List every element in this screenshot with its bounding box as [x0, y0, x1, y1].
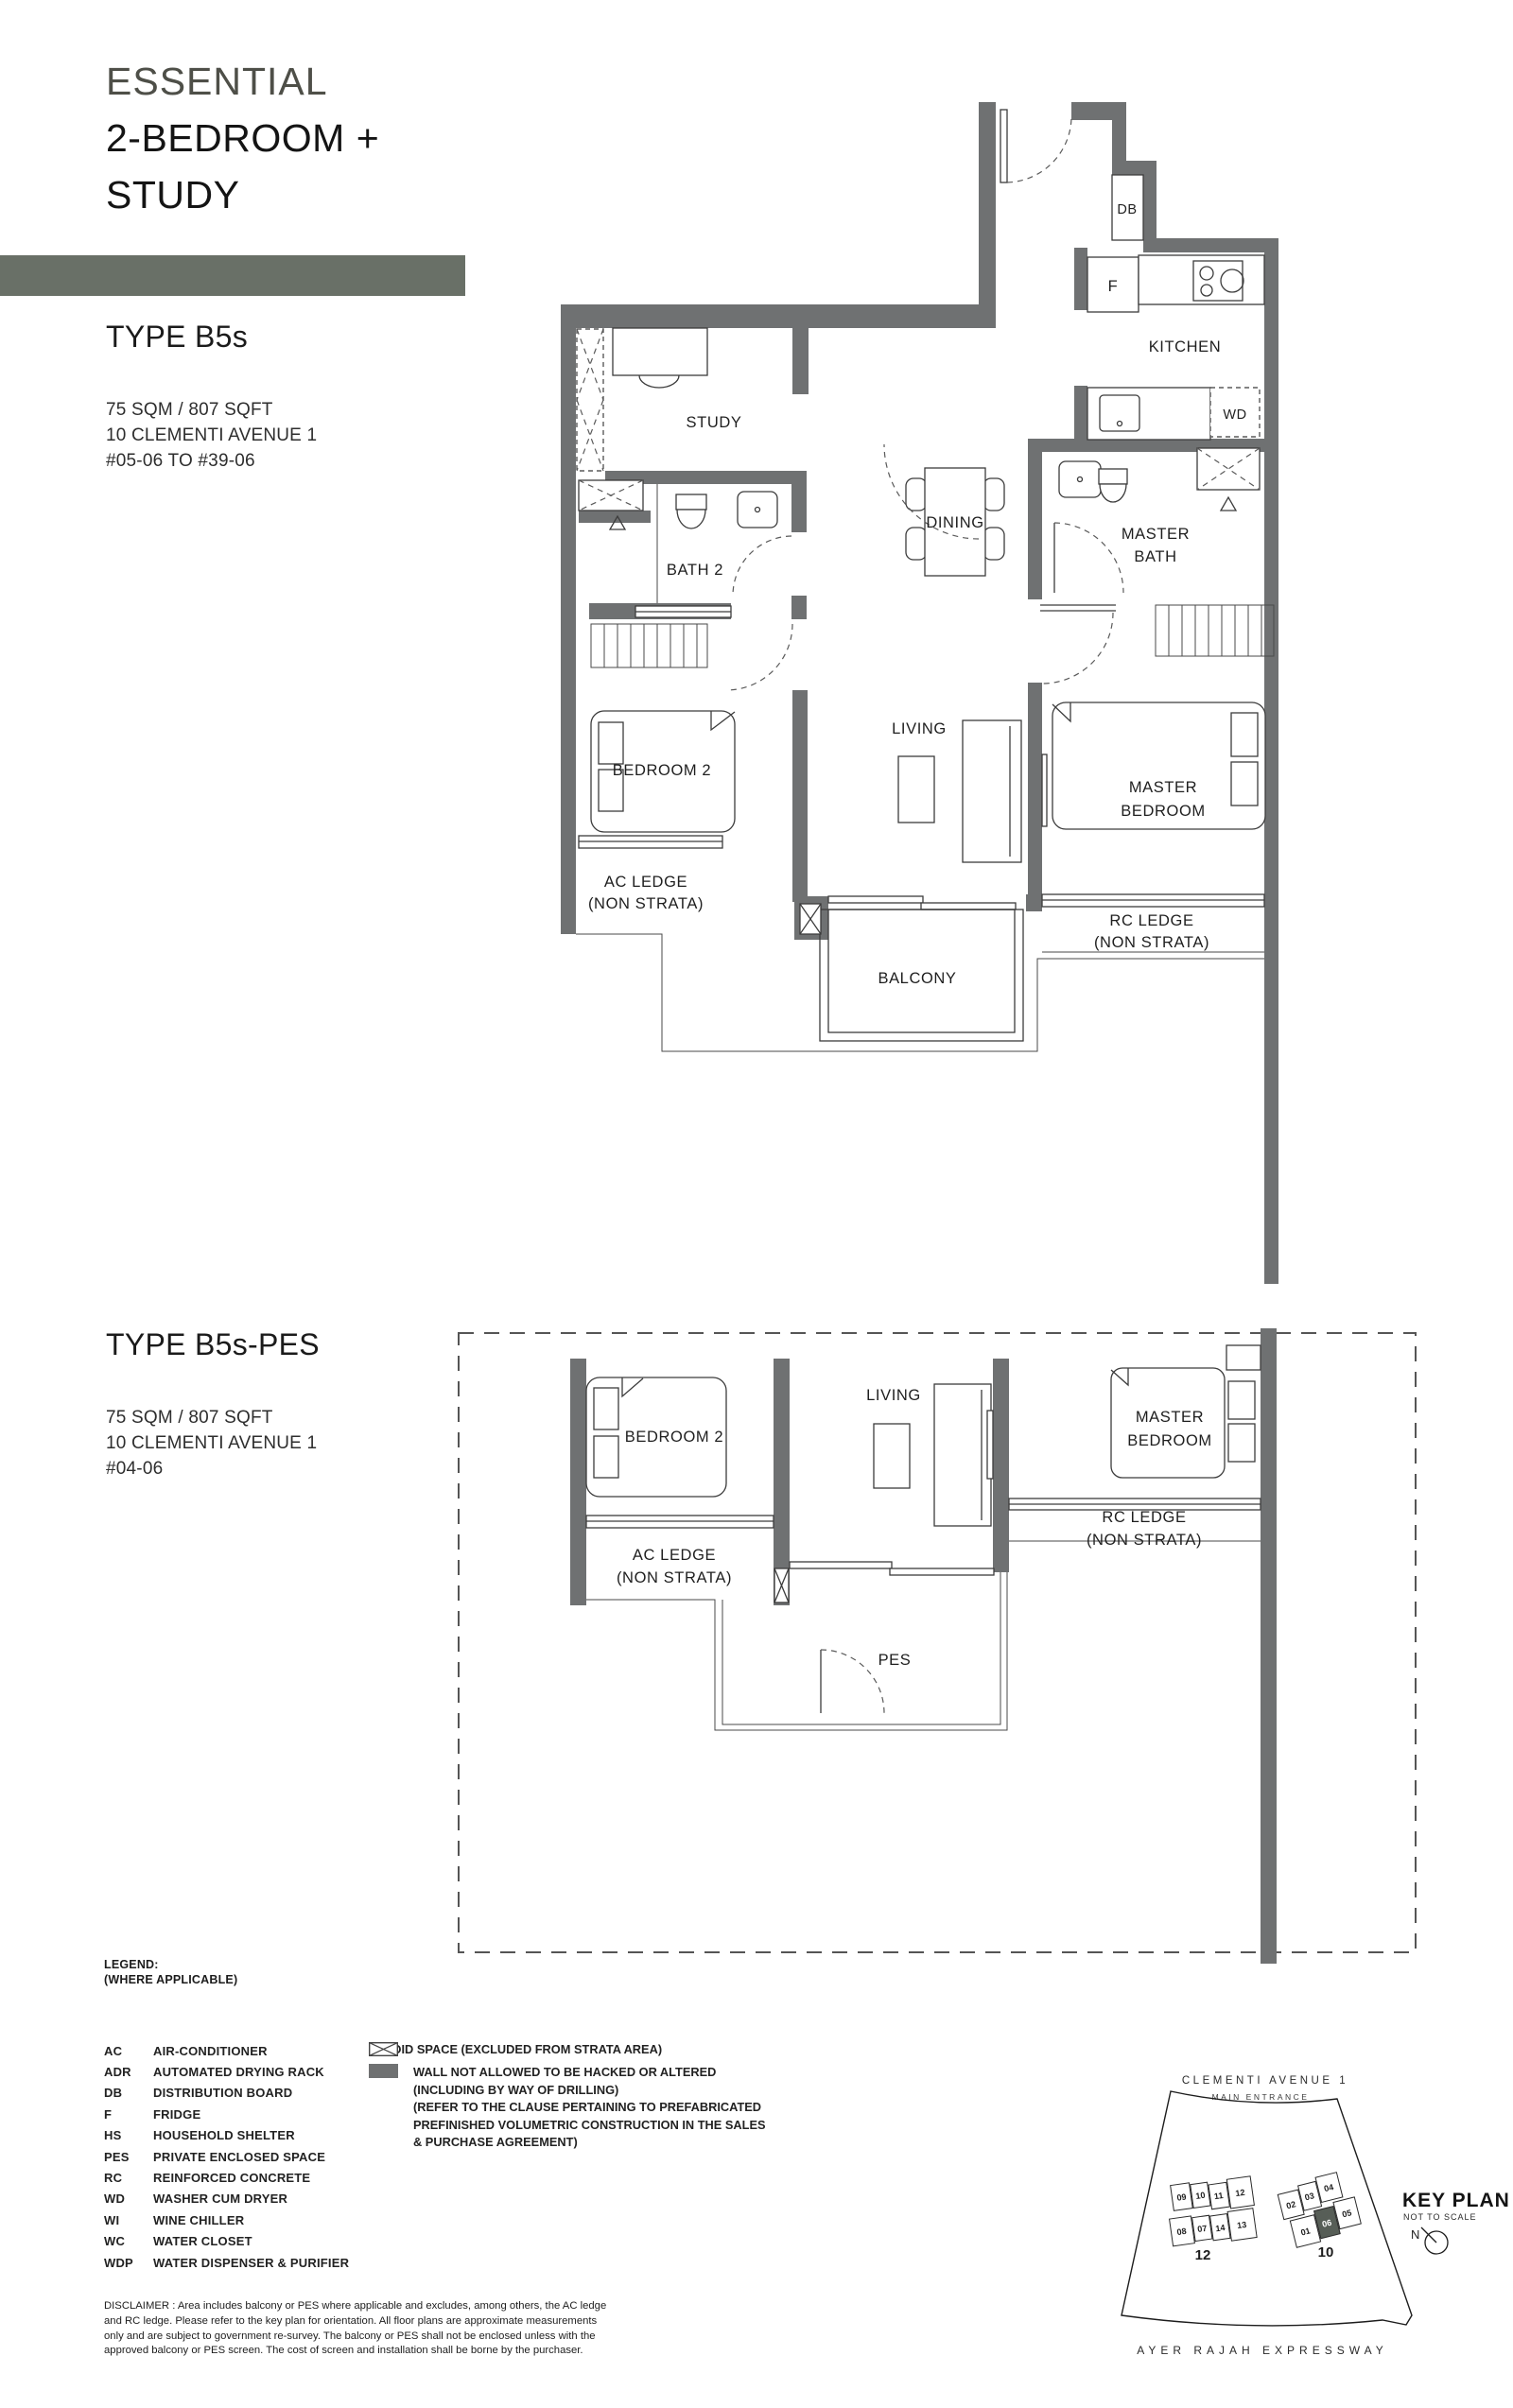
legend-item: WDPWATER DISPENSER & PURIFIER — [104, 2252, 359, 2273]
type-b5s-area: 75 SQM / 807 SQFT — [106, 397, 317, 423]
type-b5s-pes-area: 75 SQM / 807 SQFT — [106, 1405, 317, 1430]
plan2-label-living: LIVING — [866, 1387, 921, 1404]
type-b5s-address: 10 CLEMENTI AVENUE 1 — [106, 423, 317, 448]
plan1-label-master-bed-1: MASTER — [1129, 779, 1197, 796]
legend-item: ADRAUTOMATED DRYING RACK — [104, 2061, 359, 2082]
north-indicator-icon: N — [1411, 2227, 1448, 2254]
plan1-label-bedroom2: BEDROOM 2 — [613, 762, 711, 779]
plan2-label-rc-ledge-1: RC LEDGE — [1102, 1509, 1186, 1526]
legend-list: ACAIR-CONDITIONER ADRAUTOMATED DRYING RA… — [104, 2040, 359, 2273]
block-12-cluster: 09 10 11 12 08 07 14 13 — [1165, 2174, 1259, 2249]
void-space-icon — [369, 2042, 398, 2056]
master-window — [1042, 894, 1264, 907]
plan1-label-wd: WD — [1223, 407, 1246, 423]
floorplan-type-b5s-pes: BEDROOM 2 LIVING MASTER BEDROOM AC LEDGE… — [444, 1319, 1447, 1971]
plan1-label-fridge: F — [1108, 278, 1119, 295]
legend-heading: LEGEND: (WHERE APPLICABLE) — [104, 1957, 237, 1987]
block-10-cluster: 02 03 04 01 06 05 — [1276, 2170, 1363, 2249]
page-title-line2: STUDY — [106, 166, 379, 223]
plan1-label-living: LIVING — [892, 720, 947, 737]
legend-title: LEGEND: — [104, 1957, 237, 1972]
plan1-label-kitchen: KITCHEN — [1149, 338, 1222, 355]
plan1-label-master-bed-2: BEDROOM — [1121, 803, 1205, 820]
keyplan-title: KEY PLAN — [1402, 2190, 1510, 2211]
svg-text:13: 13 — [1237, 2220, 1247, 2230]
keyplan-expressway-label: AYER RAJAH EXPRESSWAY — [1137, 2344, 1387, 2357]
plan2-living-furniture — [874, 1384, 993, 1526]
key-plan: CLEMENTI AVENUE 1 MAIN ENTRANCE 09 10 11… — [1097, 2061, 1494, 2373]
legend-item: HSHOUSEHOLD SHELTER — [104, 2125, 359, 2146]
plan1-label-ac-ledge-2: (NON STRATA) — [588, 895, 704, 912]
void-space-box-master — [1197, 448, 1260, 511]
svg-text:10: 10 — [1195, 2191, 1206, 2201]
block-10-label: 10 — [1318, 2244, 1334, 2261]
bedroom2-bed-icon — [591, 624, 792, 832]
legend-item: PESPRIVATE ENCLOSED SPACE — [104, 2146, 359, 2167]
legend-wall-text: WALL NOT ALLOWED TO BE HACKED OR ALTERED… — [413, 2064, 766, 2152]
kitchen-sink-counter-icon — [1087, 388, 1210, 440]
type-b5s-pes-address: 10 CLEMENTI AVENUE 1 — [106, 1430, 317, 1456]
keyplan-street-label: CLEMENTI AVENUE 1 — [1182, 2075, 1348, 2087]
plan2-label-master-bed-1: MASTER — [1136, 1409, 1204, 1426]
page-title: 2-BEDROOM + STUDY — [106, 110, 379, 223]
plan1-label-ac-ledge-1: AC LEDGE — [604, 874, 687, 891]
plan1-label-balcony: BALCONY — [878, 970, 956, 987]
plan2-label-rc-ledge-2: (NON STRATA) — [1087, 1532, 1202, 1549]
plan1-label-db: DB — [1117, 202, 1137, 217]
plan1-label-master-bath-2: BATH — [1134, 548, 1176, 565]
legend-item: ACAIR-CONDITIONER — [104, 2040, 359, 2061]
balcony-outline — [800, 896, 1023, 1041]
legend-item: WDWASHER CUM DRYER — [104, 2189, 359, 2209]
legend-wall-row: WALL NOT ALLOWED TO BE HACKED OR ALTERED… — [369, 2064, 766, 2152]
type-b5s-pes-name: TYPE B5s-PES — [106, 1327, 320, 1362]
plan1-label-rc-ledge-2: (NON STRATA) — [1094, 934, 1209, 951]
site-boundary — [1122, 2091, 1412, 2326]
svg-text:11: 11 — [1213, 2191, 1224, 2201]
svg-text:07: 07 — [1197, 2224, 1208, 2234]
page-title-line1: 2-BEDROOM + — [106, 110, 379, 166]
legend-item: RCREINFORCED CONCRETE — [104, 2167, 359, 2188]
floorplan-type-b5s: STUDY DB F KITCHEN WD DINING BATH 2 MAST… — [530, 57, 1286, 1295]
legend-subtitle: (WHERE APPLICABLE) — [104, 1972, 237, 1987]
type-b5s-stack: #05-06 TO #39-06 — [106, 448, 317, 474]
svg-text:08: 08 — [1176, 2226, 1187, 2237]
type-b5s-pes-stack: #04-06 — [106, 1456, 317, 1481]
plan1-label-bath2: BATH 2 — [667, 562, 723, 579]
entrance-door-icon — [1000, 110, 1071, 182]
wall-swatch-icon — [369, 2064, 398, 2078]
plan2-bedroom2-window — [586, 1516, 774, 1528]
accent-bar — [0, 255, 465, 296]
legend-item: WIWINE CHILLER — [104, 2209, 359, 2230]
study-area — [577, 328, 707, 471]
bath2-fixtures — [657, 484, 791, 603]
plan2-label-pes: PES — [878, 1652, 912, 1669]
plan2-pes-outline — [586, 1562, 1007, 1730]
bedroom2-wardrobe-icon — [591, 624, 707, 667]
legend-item: DBDISTRIBUTION BOARD — [104, 2083, 359, 2104]
block-12-label: 12 — [1195, 2247, 1211, 2263]
disclaimer: DISCLAIMER : Area includes balcony or PE… — [104, 2299, 606, 2359]
type-b5s-pes-details: 75 SQM / 807 SQFT 10 CLEMENTI AVENUE 1 #… — [106, 1405, 317, 1481]
kitchen-counter-hob-icon — [1139, 255, 1264, 304]
plan2-label-ac-ledge-2: (NON STRATA) — [617, 1569, 732, 1586]
legend-item: FFRIDGE — [104, 2104, 359, 2124]
plan1-label-study: STUDY — [687, 414, 742, 431]
brand-eyebrow: ESSENTIAL — [106, 53, 328, 110]
legend-void-row: VOID SPACE (EXCLUDED FROM STRATA AREA) — [369, 2042, 662, 2056]
plan1-label-rc-ledge-1: RC LEDGE — [1109, 912, 1193, 929]
legend-void-text: VOID SPACE (EXCLUDED FROM STRATA AREA) — [384, 2042, 662, 2056]
svg-text:14: 14 — [1215, 2223, 1226, 2233]
plan1-label-master-bath-1: MASTER — [1122, 526, 1190, 543]
type-b5s-name: TYPE B5s — [106, 320, 248, 355]
plan1-label-dining: DINING — [926, 514, 983, 531]
plan2-label-bedroom2: BEDROOM 2 — [625, 1429, 723, 1446]
void-space-box-plan2 — [774, 1568, 789, 1602]
master-bath-fixtures — [1040, 461, 1127, 611]
floorplan-page: ESSENTIAL 2-BEDROOM + STUDY TYPE B5s 75 … — [0, 0, 1513, 2408]
plan2-label-ac-ledge-1: AC LEDGE — [633, 1547, 716, 1564]
bedroom2-window — [579, 836, 722, 848]
svg-text:N: N — [1411, 2227, 1419, 2242]
master-wardrobe-icon — [1156, 605, 1274, 656]
legend-item: WCWATER CLOSET — [104, 2231, 359, 2252]
keyplan-not-to-scale: NOT TO SCALE — [1403, 2212, 1477, 2222]
plan2-label-master-bed-2: BEDROOM — [1127, 1432, 1211, 1449]
type-b5s-details: 75 SQM / 807 SQFT 10 CLEMENTI AVENUE 1 #… — [106, 397, 317, 474]
svg-text:09: 09 — [1176, 2191, 1187, 2202]
svg-text:12: 12 — [1235, 2188, 1245, 2198]
